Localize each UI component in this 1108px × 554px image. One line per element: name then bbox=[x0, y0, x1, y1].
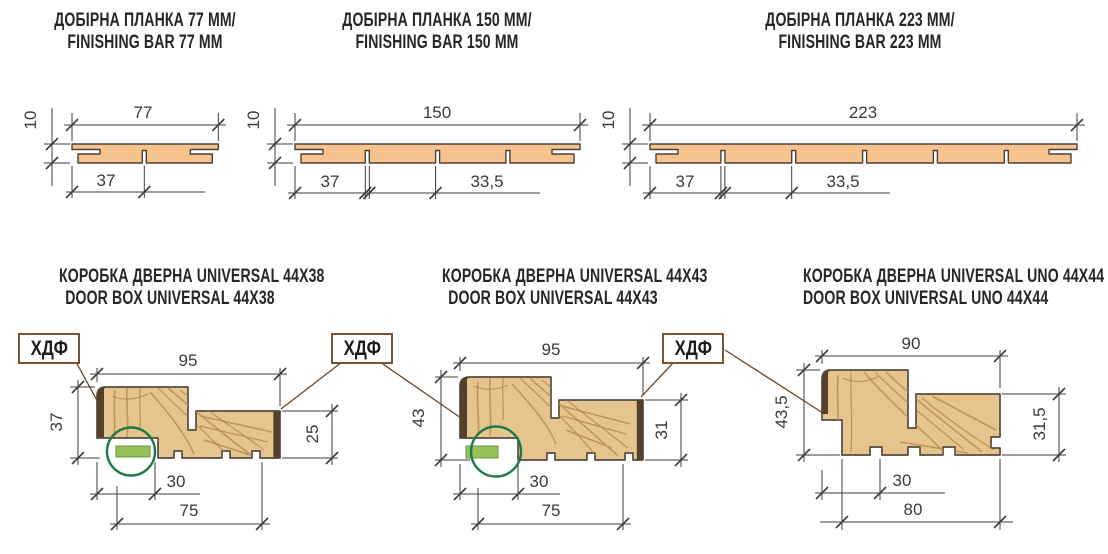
title-line-en: FINISHING BAR 150 MM bbox=[326, 32, 548, 54]
title-door-box-uno-44x44: КОРОБКА ДВЕРНА UNIVERSAL UNO 44X44 DOOR … bbox=[803, 266, 1025, 311]
dim-height-label: 43,5 bbox=[772, 395, 791, 428]
bar-profile-77 bbox=[72, 144, 218, 163]
title-line-en: FINISHING BAR 77 MM bbox=[34, 32, 256, 54]
title-finishing-bar-150: ДОБІРНА ПЛАНКА 150 ММ/ FINISHING BAR 150… bbox=[326, 10, 548, 55]
title-line-uk: ДОБІРНА ПЛАНКА 77 ММ/ bbox=[34, 10, 256, 32]
door-seal bbox=[116, 446, 150, 457]
dim-base-width-label: 80 bbox=[904, 500, 923, 519]
title-line-uk: ДОБІРНА ПЛАНКА 223 ММ/ bbox=[749, 10, 971, 32]
door-box-uno-44x44-diagram: 90 43,5 31,5 30 80 bbox=[772, 334, 1066, 530]
dim-width-label: 77 bbox=[134, 103, 153, 122]
title-line-uk: КОРОБКА ДВЕРНА UNIVERSAL 44X43 bbox=[442, 266, 664, 288]
hdf-callout-label: ХДФ bbox=[674, 337, 711, 361]
dim-offset-label: 37 bbox=[676, 172, 695, 191]
hdf-callout-label: ХДФ bbox=[30, 337, 67, 361]
dim-width-label: 95 bbox=[179, 351, 198, 370]
wood-profile bbox=[822, 370, 1000, 455]
title-line-en: FINISHING BAR 223 MM bbox=[749, 32, 971, 54]
dim-offset-label: 37 bbox=[321, 172, 340, 191]
bar-profile-150 bbox=[295, 144, 580, 163]
dim-width-label: 150 bbox=[423, 103, 451, 122]
finishing-bar-223-diagram: 223 10 37 33,5 bbox=[599, 103, 1085, 199]
title-line-uk: КОРОБКА ДВЕРНА UNIVERSAL UNO 44X44 bbox=[803, 266, 1025, 288]
title-line-en: DOOR BOX UNIVERSAL 44X38 bbox=[59, 288, 281, 310]
dim-width-label: 223 bbox=[849, 103, 877, 122]
dim-offset-label: 37 bbox=[97, 171, 116, 190]
title-door-box-44x43: КОРОБКА ДВЕРНА UNIVERSAL 44X43 DOOR BOX … bbox=[442, 266, 664, 311]
dim-seal-offset-label: 30 bbox=[167, 472, 186, 491]
hdf-callout-box: ХДФ bbox=[18, 333, 80, 364]
dim-thickness-label: 10 bbox=[21, 111, 40, 130]
bar-profile-223 bbox=[650, 144, 1077, 163]
hdf-callout-box: ХДФ bbox=[662, 333, 724, 364]
door-box-44x43-diagram: 95 43 31 30 75 bbox=[409, 340, 688, 530]
title-line-uk: КОРОБКА ДВЕРНА UNIVERSAL 44X38 bbox=[59, 266, 281, 288]
dim-seal-offset-label: 30 bbox=[530, 472, 549, 491]
title-door-box-44x38: КОРОБКА ДВЕРНА UNIVERSAL 44X38 DOOR BOX … bbox=[59, 266, 281, 311]
dim-stop-height-label: 25 bbox=[303, 425, 322, 444]
dim-width-label: 90 bbox=[902, 334, 921, 353]
hdf-callout-box: ХДФ bbox=[331, 333, 393, 364]
title-finishing-bar-223: ДОБІРНА ПЛАНКА 223 ММ/ FINISHING BAR 223… bbox=[749, 10, 971, 55]
finishing-bar-150-diagram: 150 10 37 33,5 bbox=[244, 103, 588, 199]
title-line-uk: ДОБІРНА ПЛАНКА 150 ММ/ bbox=[326, 10, 548, 32]
title-finishing-bar-77: ДОБІРНА ПЛАНКА 77 ММ/ FINISHING BAR 77 M… bbox=[34, 10, 256, 55]
dim-thickness-label: 10 bbox=[599, 111, 618, 130]
dim-stop-height-label: 31 bbox=[652, 421, 671, 440]
hdf-edge-cap-right bbox=[273, 412, 279, 458]
dim-thickness-label: 10 bbox=[244, 111, 263, 130]
hdf-callout-label: ХДФ bbox=[343, 337, 380, 361]
dim-base-width-label: 75 bbox=[180, 501, 199, 520]
dim-pitch-label: 33,5 bbox=[826, 172, 859, 191]
title-line-en: DOOR BOX UNIVERSAL UNO 44X44 bbox=[803, 288, 1025, 310]
door-box-44x38-diagram: 95 37 25 30 75 bbox=[47, 351, 338, 530]
dim-pitch-label: 33,5 bbox=[470, 172, 503, 191]
title-line-en: DOOR BOX UNIVERSAL 44X43 bbox=[442, 288, 664, 310]
dim-height-label: 37 bbox=[47, 413, 66, 432]
dim-stop-height-label: 31,5 bbox=[1030, 407, 1049, 440]
dim-seal-offset-label: 30 bbox=[893, 471, 912, 490]
finishing-bar-77-diagram: 77 10 37 bbox=[21, 103, 226, 198]
drawing-sheet: 77 10 37 150 10 37 33,5 223 10 37 33,5 bbox=[0, 0, 1108, 554]
dim-height-label: 43 bbox=[409, 409, 428, 428]
hdf-edge-cap-right bbox=[637, 401, 643, 460]
dim-base-width-label: 75 bbox=[542, 501, 561, 520]
dim-width-label: 95 bbox=[542, 340, 561, 359]
